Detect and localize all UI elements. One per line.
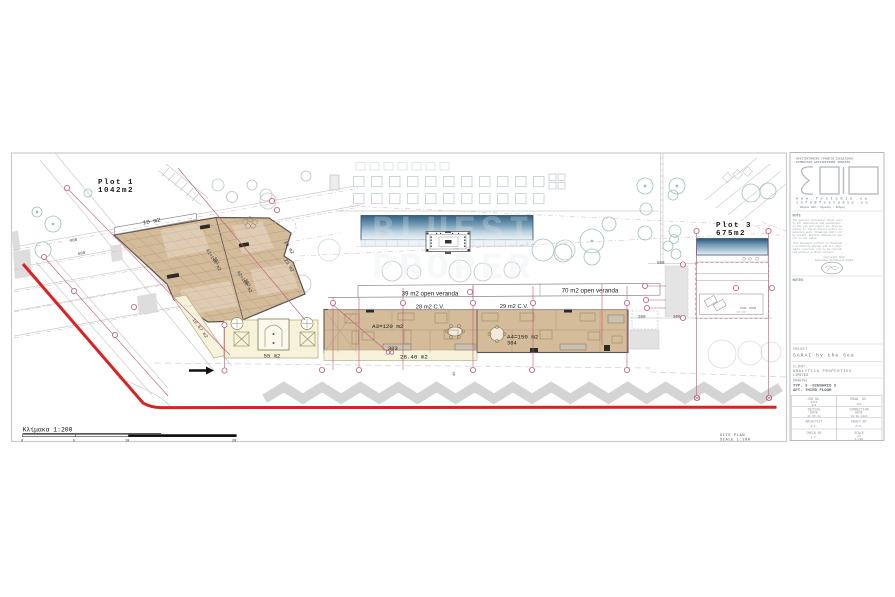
- svg-text:A3=120 m2: A3=120 m2: [372, 323, 404, 330]
- svg-text:40: 40: [453, 371, 457, 376]
- svg-text:ced without written consent.: ced without written consent.: [793, 251, 835, 254]
- svg-text:NOTE: NOTE: [793, 215, 801, 219]
- svg-text:SCALE 1:200: SCALE 1:200: [720, 439, 751, 443]
- svg-text:11.05.22: 11.05.22: [807, 415, 821, 418]
- svg-text:TYP. 3 -SCENARIO 3: TYP. 3 -SCENARIO 3: [793, 385, 837, 389]
- svg-text:Κλίμακα 1:200: Κλίμακα 1:200: [23, 427, 73, 434]
- svg-text:29.08.2024: 29.08.2024: [851, 415, 868, 418]
- svg-text:DATE: DATE: [810, 411, 818, 415]
- svg-text:300: 300: [638, 316, 646, 320]
- svg-text:ΣΥΜΒΟΥΛΟΙ ΑΡΧΙΤΕΚΤΟΝΕΣ ΣΠΟΥΔΙΟ: ΣΥΜΒΟΥΛΟΙ ΑΡΧΙΤΕΚΤΟΝΕΣ ΣΠΟΥΔΙΟ: [796, 161, 850, 164]
- svg-text:APT- THIRD FLOOR: APT- THIRD FLOOR: [793, 389, 832, 393]
- svg-text:600: 600: [657, 262, 665, 266]
- svg-text:5: 5: [73, 440, 75, 444]
- svg-text:300: 300: [673, 316, 681, 320]
- svg-text:DRAWING: DRAWING: [793, 380, 807, 384]
- svg-text:NOTES: NOTES: [793, 279, 805, 283]
- svg-text:feastudio Architects Right: feastudio Architects Right: [814, 259, 854, 262]
- svg-text:CLIENT:: CLIENT:: [793, 366, 807, 370]
- svg-text:29 m2 C.V.: 29 m2 C.V.: [500, 304, 529, 310]
- svg-text:M.S.: M.S.: [856, 425, 863, 428]
- svg-text:1042m2: 1042m2: [98, 187, 134, 195]
- svg-text:303: 303: [388, 346, 398, 352]
- svg-text:55 m2: 55 m2: [264, 353, 281, 360]
- svg-text:201: 201: [856, 403, 861, 406]
- svg-text:ΑΡΧΙΤΕΚΤΟΝΙΚΟ ΓΡΑΦΕΙΟ ΣΧΕΔΙΑΣΜ: ΑΡΧΙΤΕΚΤΟΝΙΚΟ ΓΡΑΦΕΙΟ ΣΧΕΔΙΑΣΜΟΥ: [796, 157, 854, 161]
- svg-text:28.40 m2: 28.40 m2: [400, 354, 428, 361]
- svg-text:DRAFT BY: DRAFT BY: [851, 420, 866, 424]
- svg-text:ern in all cases.: ern in all cases.: [793, 237, 819, 240]
- svg-text:20: 20: [232, 440, 236, 444]
- svg-text:304: 304: [507, 341, 517, 347]
- svg-text:1/200: 1/200: [855, 437, 864, 441]
- svg-text:70 m2 open veranda: 70 m2 open veranda: [562, 288, 619, 295]
- svg-text:28 m2 C.V.: 28 m2 C.V.: [416, 305, 445, 311]
- svg-text:Plot 1: Plot 1: [98, 179, 134, 187]
- svg-text:mmm mmmm: mmm mmmm: [736, 311, 747, 314]
- svg-text:675m2: 675m2: [716, 230, 746, 238]
- svg-text:A4=150 m2: A4=150 m2: [507, 334, 539, 341]
- svg-text:DRAW. NO.: DRAW. NO.: [850, 397, 867, 401]
- svg-text:Αθηνών 304 / Λεμεσός / Κύπρος: Αθηνών 304 / Λεμεσός / Κύπρος: [800, 205, 846, 209]
- svg-text:DATE: DATE: [855, 411, 863, 415]
- svg-text:S.F.: S.F.: [811, 437, 818, 440]
- svg-text:PROJECT: PROJECT: [793, 348, 807, 352]
- svg-text:10: 10: [125, 440, 129, 444]
- svg-text:SITE PLAN: SITE PLAN: [720, 434, 745, 438]
- svg-text:LIMITED: LIMITED: [793, 374, 808, 378]
- svg-text:0: 0: [21, 440, 23, 444]
- svg-text:info@festudio.eu: info@festudio.eu: [796, 201, 870, 206]
- svg-text:39 m2 open veranda: 39 m2 open veranda: [402, 291, 459, 298]
- svg-text:CHECK BY: CHECK BY: [806, 431, 821, 435]
- svg-text:S.F.: S.F.: [811, 425, 818, 428]
- svg-text:ARCHITECT: ARCHITECT: [805, 420, 822, 424]
- svg-text:Plot 3: Plot 3: [716, 222, 752, 230]
- svg-text:SARAI by the Sea: SARAI by the Sea: [793, 353, 855, 359]
